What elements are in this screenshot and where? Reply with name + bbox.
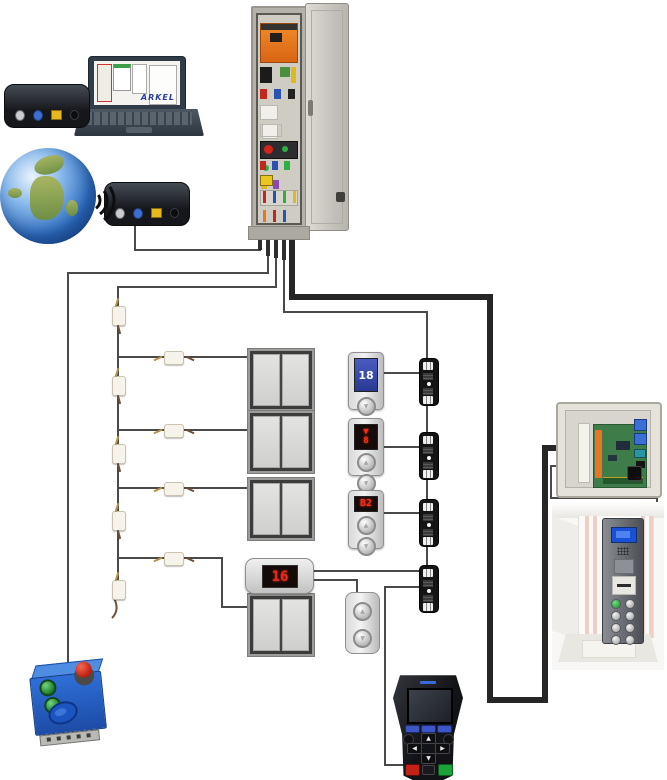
inspection-box-front	[29, 671, 107, 736]
laptop-keyboard	[74, 109, 204, 136]
hand-terminal: ▲ ◀ ▶ ▼	[393, 672, 463, 780]
cop-button	[625, 635, 635, 645]
splice-connector	[164, 482, 184, 496]
car-button-up: ▲	[353, 602, 372, 621]
bus-node-4	[419, 565, 439, 613]
terminal-screen	[407, 688, 453, 724]
terminal-enter-key	[438, 764, 453, 776]
wire-cabinet-inspection-box	[68, 236, 268, 664]
indicator-value: 16	[262, 565, 298, 588]
cabinet-plinth	[248, 226, 310, 240]
landing-door-2	[247, 410, 315, 474]
cop-button	[611, 611, 621, 621]
wire-display-carbuttons	[312, 580, 357, 592]
arrow-down-key: ▼	[421, 753, 436, 764]
terminal-strip	[260, 190, 298, 206]
cop-button	[625, 611, 635, 621]
cop-button	[625, 623, 635, 633]
module-row-relays	[260, 105, 296, 120]
cop-button	[611, 599, 621, 609]
internet-globe-icon	[0, 148, 96, 244]
splice-connector	[164, 424, 184, 438]
lop-display: B2	[360, 499, 372, 509]
blue-connector	[634, 419, 647, 431]
cop-button	[625, 599, 635, 609]
modem-ports	[115, 208, 179, 218]
splice-connector	[112, 376, 126, 396]
door-hinge	[336, 192, 345, 202]
splice-connector	[112, 511, 126, 531]
diagram-canvas: ARKEL	[0, 0, 667, 780]
landing-door-4	[247, 593, 315, 657]
arrow-up-key: ▲	[421, 733, 436, 744]
bus-node-3	[419, 499, 439, 547]
teal-connector	[634, 449, 646, 458]
wire-modem-cabinet	[135, 222, 260, 250]
splice-connector	[112, 306, 126, 326]
call-button-up: ▲	[357, 516, 376, 535]
terminal-brand-strip	[420, 681, 436, 684]
module-row-terminals	[260, 161, 296, 172]
board-connector-strip	[595, 430, 602, 478]
arrow-right-key: ▶	[435, 743, 450, 754]
car-operating-panel	[602, 518, 644, 644]
cop-button	[611, 623, 621, 633]
bus-node-2	[419, 432, 439, 480]
modem-ports	[15, 110, 79, 120]
blue-connector	[634, 433, 647, 445]
call-button-down: ▼	[357, 537, 376, 556]
control-cabinet	[251, 6, 309, 232]
cop-plate	[614, 559, 634, 574]
module-row-7	[260, 175, 296, 186]
module-row-1	[260, 67, 296, 85]
call-button: ▼	[357, 397, 376, 416]
lop-display: 8	[363, 437, 368, 446]
cable-duct	[578, 423, 590, 483]
shaft-cable-tail	[112, 598, 117, 618]
car-top-box	[556, 402, 662, 498]
cabinet-door	[305, 3, 349, 231]
splice-connector	[164, 351, 184, 365]
cop-button	[611, 635, 621, 645]
elevator-cab	[552, 502, 664, 670]
arrow-left-key: ◀	[407, 743, 422, 754]
splice-connector	[164, 552, 184, 566]
lop-bottom: B2 ▲ ▼	[348, 490, 384, 549]
cabinet-interior	[256, 13, 302, 225]
card-reader	[612, 576, 636, 595]
cop-display	[611, 527, 637, 543]
laptop-screen: ARKEL	[88, 56, 186, 112]
lop-top: 18 ▼	[348, 352, 384, 410]
bus-node-1	[419, 358, 439, 406]
call-button-up: ▲	[357, 453, 376, 472]
module-row-4	[260, 124, 296, 137]
module-safety-panel	[260, 141, 298, 159]
splice-connector	[112, 580, 126, 600]
run-button	[39, 678, 58, 697]
terminal-softkey-3	[437, 725, 452, 733]
lop-middle: ▼ 8 ▲ ▼	[348, 418, 384, 476]
arkel-logo-text: ARKEL	[141, 93, 175, 102]
car-call-panel: ▲ ▼	[345, 592, 380, 654]
inspection-box	[28, 656, 114, 748]
power-socket	[627, 466, 642, 481]
drive-unit	[260, 23, 298, 63]
landing-door-3	[247, 477, 315, 541]
speaker-grille-icon	[617, 547, 629, 555]
car-button-down: ▼	[353, 629, 372, 648]
door-handle	[308, 100, 313, 116]
terminal-center-key	[422, 765, 435, 775]
landing-door-1	[247, 348, 315, 412]
laptop-display: ARKEL	[94, 61, 180, 105]
terminal-softkey-1	[405, 725, 420, 733]
module-row-2	[260, 89, 296, 101]
splice-connector	[112, 444, 126, 464]
car-position-indicator: 16	[245, 558, 314, 594]
terminal-softkey-2	[421, 725, 436, 733]
lop-display: 18	[354, 358, 378, 392]
terminal-cancel-key	[405, 764, 420, 776]
